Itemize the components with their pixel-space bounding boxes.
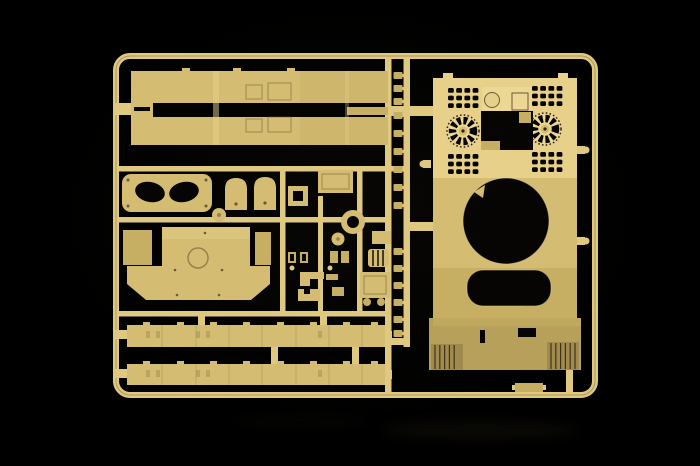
runner-horizontal-1 xyxy=(119,166,410,172)
turret-ring-opening xyxy=(463,178,549,264)
runner-vertical-a xyxy=(280,168,286,314)
small-box-part xyxy=(372,231,391,244)
crew-hatch-right xyxy=(254,177,276,210)
fan-grille-right xyxy=(529,113,561,145)
runner-horizontal-3 xyxy=(119,311,391,317)
tab-strip2-left xyxy=(113,369,128,378)
side-skirt-strips xyxy=(127,322,385,385)
tab-panels-left xyxy=(113,103,132,115)
fan-grille-left xyxy=(447,115,479,147)
tab-hull-bottom xyxy=(566,368,573,393)
small-bar-part xyxy=(512,383,546,392)
track-guard-left xyxy=(431,344,463,370)
engine-hatch-plate xyxy=(122,174,212,212)
photo-stage xyxy=(0,0,700,466)
sprue-photo xyxy=(0,0,700,466)
rear-deck-part xyxy=(123,227,271,300)
sponson-plate-right xyxy=(255,232,271,265)
ribbed-cylinder-part xyxy=(368,249,389,267)
floor-reflection xyxy=(230,416,580,439)
runner-to-hull-connector xyxy=(408,222,435,231)
side-skirt-strip-lower xyxy=(127,364,385,385)
track-guard-right xyxy=(547,342,579,370)
side-skirt-panels xyxy=(131,68,388,145)
side-skirt-strip-upper xyxy=(127,325,385,347)
rounded-hatch-opening xyxy=(467,270,551,306)
small-detail-parts xyxy=(288,249,390,306)
tab-strip1-left xyxy=(113,330,128,339)
rect-plate-part xyxy=(318,170,353,193)
hull-roof-part xyxy=(420,73,590,370)
center-hatch-block xyxy=(481,87,533,150)
sponson-plate-left xyxy=(123,230,152,265)
